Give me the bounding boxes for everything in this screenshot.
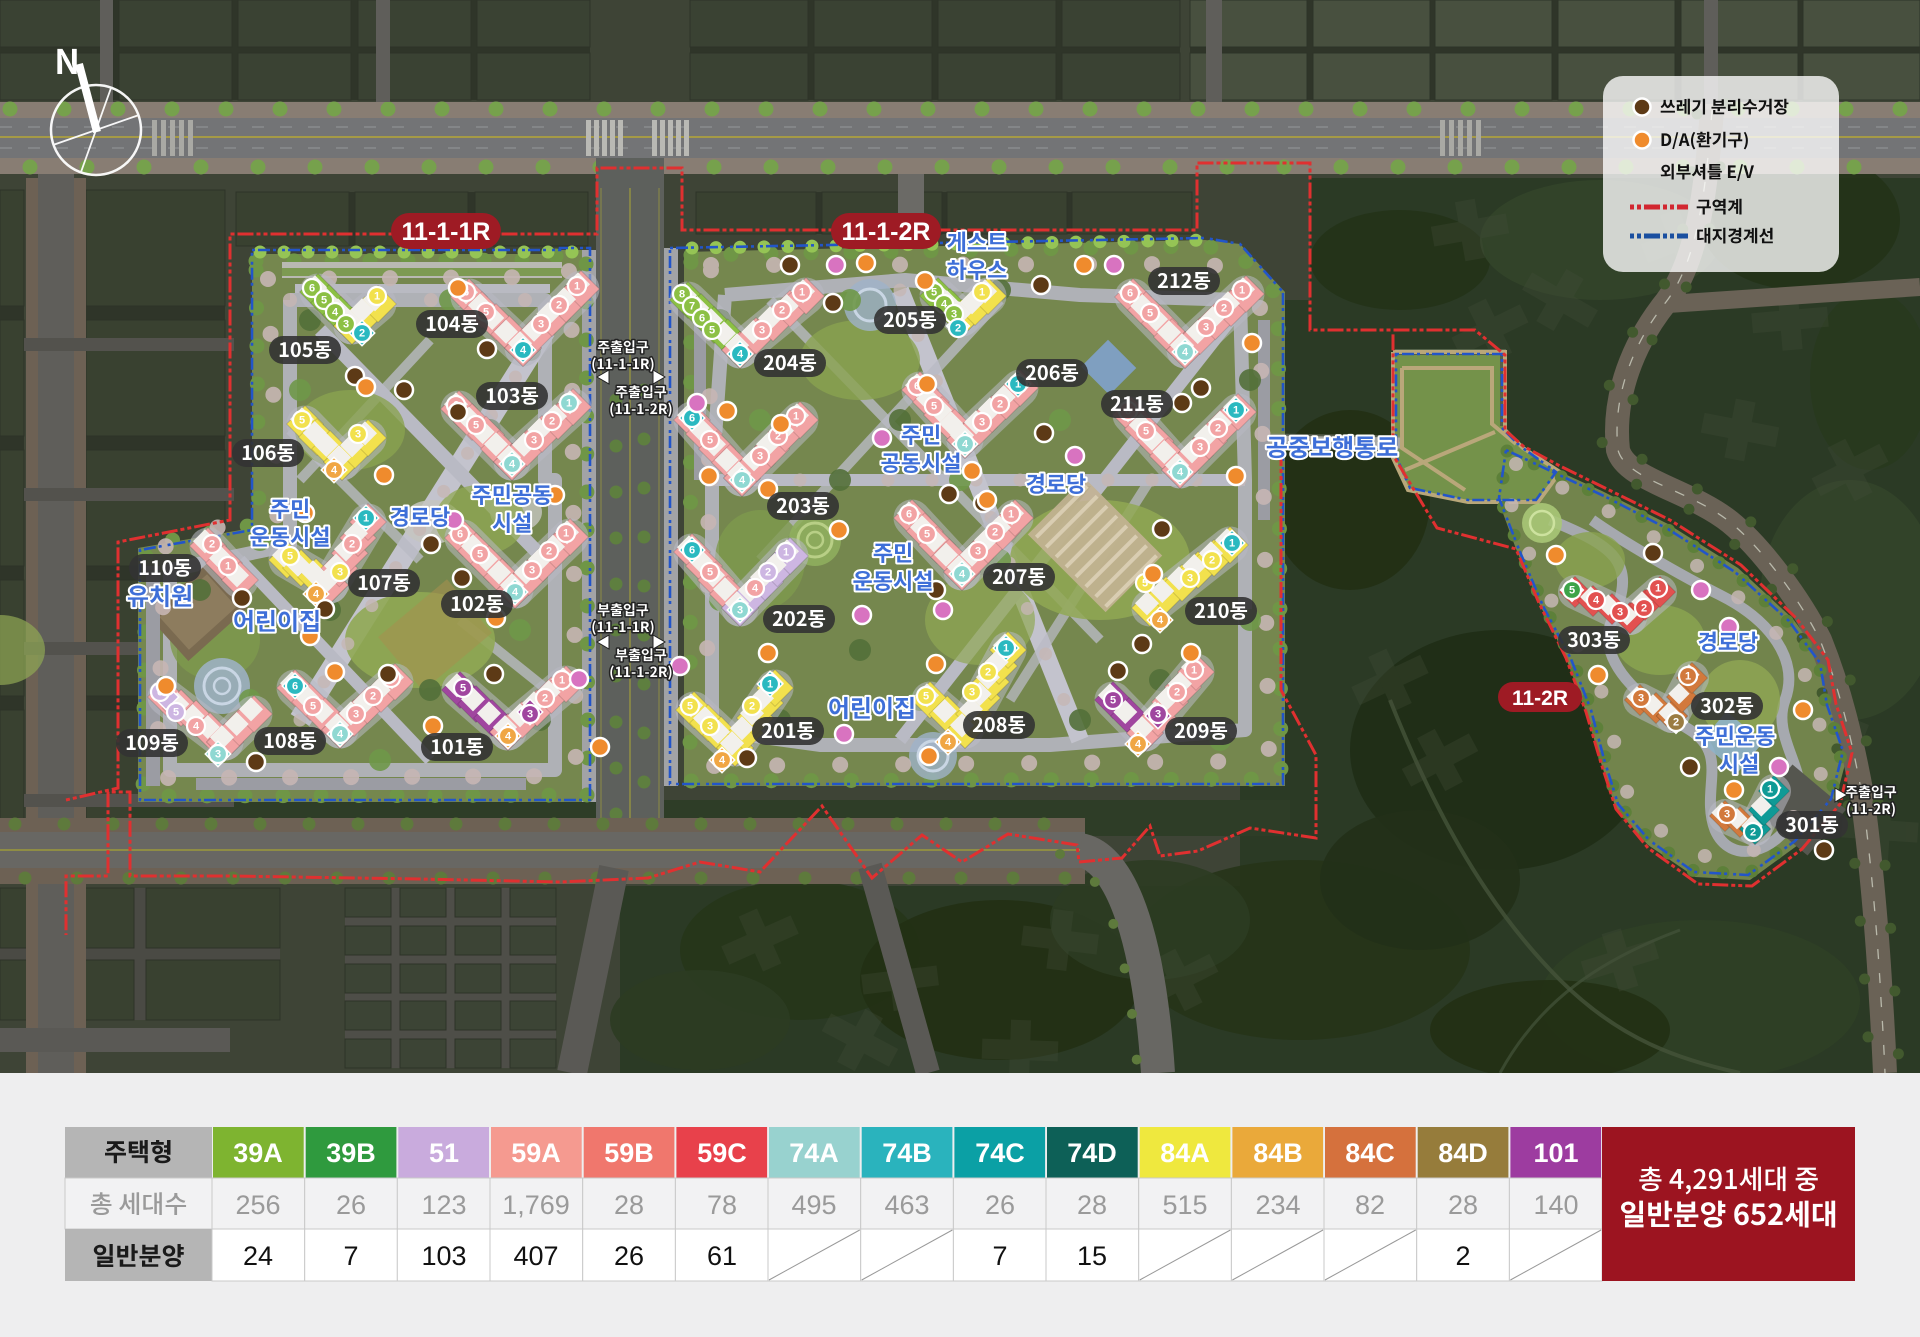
svg-text:5: 5	[687, 701, 693, 713]
svg-text:6: 6	[1127, 288, 1133, 300]
svg-text:5: 5	[173, 707, 179, 719]
svg-text:140: 140	[1533, 1190, 1578, 1220]
svg-text:1: 1	[1233, 405, 1239, 417]
svg-text:6: 6	[309, 283, 315, 295]
svg-text:4: 4	[962, 439, 969, 451]
svg-text:6: 6	[457, 529, 463, 541]
svg-text:6: 6	[906, 509, 912, 521]
svg-text:2: 2	[542, 693, 548, 705]
svg-text:1: 1	[783, 547, 789, 559]
svg-text:84A: 84A	[1160, 1138, 1210, 1168]
svg-text:4: 4	[313, 589, 320, 601]
svg-text:7: 7	[689, 301, 695, 313]
svg-text:5: 5	[924, 529, 930, 541]
svg-text:3: 3	[353, 709, 359, 721]
svg-text:1: 1	[363, 513, 369, 525]
svg-text:1: 1	[767, 679, 773, 691]
svg-text:2: 2	[556, 300, 562, 312]
svg-text:6: 6	[689, 413, 695, 425]
svg-text:2: 2	[985, 667, 991, 679]
svg-text:4: 4	[739, 475, 746, 487]
svg-text:407: 407	[513, 1241, 558, 1271]
svg-text:1: 1	[1003, 643, 1009, 655]
svg-text:2: 2	[997, 399, 1003, 411]
svg-text:61: 61	[707, 1241, 737, 1271]
svg-text:5: 5	[460, 683, 466, 695]
svg-text:26: 26	[985, 1190, 1015, 1220]
svg-text:3: 3	[215, 749, 221, 761]
svg-text:84D: 84D	[1438, 1138, 1488, 1168]
svg-text:463: 463	[884, 1190, 929, 1220]
svg-text:2: 2	[955, 323, 961, 335]
svg-text:74D: 74D	[1067, 1138, 1117, 1168]
svg-text:3: 3	[337, 567, 343, 579]
svg-text:5: 5	[477, 549, 483, 561]
svg-text:1: 1	[1239, 285, 1245, 297]
svg-text:1: 1	[979, 287, 985, 299]
svg-text:7: 7	[343, 1241, 358, 1271]
svg-text:1: 1	[799, 287, 805, 299]
svg-text:4: 4	[520, 345, 527, 357]
svg-text:4: 4	[505, 731, 512, 743]
svg-text:3: 3	[979, 417, 985, 429]
svg-text:3: 3	[1197, 442, 1203, 454]
svg-text:2: 2	[1209, 555, 1215, 567]
svg-text:101: 101	[1533, 1138, 1578, 1168]
svg-text:3: 3	[969, 687, 975, 699]
svg-text:78: 78	[707, 1190, 737, 1220]
svg-text:39A: 39A	[233, 1138, 283, 1168]
svg-text:3: 3	[707, 721, 713, 733]
svg-text:5: 5	[923, 691, 929, 703]
svg-text:2: 2	[1221, 303, 1227, 315]
svg-text:234: 234	[1255, 1190, 1300, 1220]
svg-text:2: 2	[1673, 717, 1679, 729]
svg-text:5: 5	[299, 415, 305, 427]
svg-text:5: 5	[473, 420, 479, 432]
svg-text:15: 15	[1077, 1241, 1107, 1271]
svg-text:74C: 74C	[975, 1138, 1025, 1168]
svg-text:1: 1	[563, 528, 569, 540]
svg-text:4: 4	[1157, 615, 1164, 627]
svg-text:1: 1	[1229, 538, 1235, 550]
svg-text:26: 26	[336, 1190, 366, 1220]
svg-text:3: 3	[538, 319, 544, 331]
svg-text:2: 2	[779, 305, 785, 317]
svg-text:5: 5	[321, 295, 327, 307]
svg-text:515: 515	[1162, 1190, 1207, 1220]
svg-text:4: 4	[945, 737, 952, 749]
svg-text:1: 1	[559, 675, 565, 687]
svg-text:4: 4	[1177, 467, 1184, 479]
svg-text:256: 256	[235, 1190, 280, 1220]
svg-text:4: 4	[752, 583, 759, 595]
svg-text:4: 4	[512, 587, 519, 599]
svg-text:4: 4	[193, 721, 200, 733]
svg-text:3: 3	[737, 605, 743, 617]
svg-text:8: 8	[679, 289, 685, 301]
svg-text:2: 2	[1641, 603, 1647, 615]
svg-text:4: 4	[959, 569, 966, 581]
svg-text:82: 82	[1355, 1190, 1385, 1220]
svg-text:74A: 74A	[789, 1138, 839, 1168]
svg-text:5: 5	[310, 701, 316, 713]
svg-text:1: 1	[1655, 583, 1661, 595]
svg-text:2: 2	[1455, 1241, 1470, 1271]
svg-text:4: 4	[1135, 739, 1142, 751]
svg-text:3: 3	[1724, 809, 1730, 821]
svg-text:2: 2	[1750, 827, 1756, 839]
svg-text:2: 2	[1174, 687, 1180, 699]
svg-text:4: 4	[719, 755, 726, 767]
svg-text:2: 2	[749, 701, 755, 713]
svg-text:59A: 59A	[511, 1138, 561, 1168]
svg-text:2: 2	[209, 539, 215, 551]
svg-text:2: 2	[546, 546, 552, 558]
svg-text:3: 3	[531, 435, 537, 447]
svg-text:3: 3	[355, 429, 361, 441]
svg-text:1: 1	[1685, 671, 1691, 683]
svg-text:1: 1	[566, 398, 572, 410]
svg-text:28: 28	[1448, 1190, 1478, 1220]
svg-text:5: 5	[707, 435, 713, 447]
svg-text:3: 3	[1155, 709, 1161, 721]
svg-text:6: 6	[699, 313, 705, 325]
svg-text:7: 7	[992, 1241, 1007, 1271]
svg-text:28: 28	[1077, 1190, 1107, 1220]
svg-text:2: 2	[1215, 423, 1221, 435]
svg-text:1: 1	[1008, 509, 1014, 521]
svg-text:39B: 39B	[326, 1138, 376, 1168]
svg-text:11-2R: 11-2R	[1512, 687, 1568, 710]
svg-text:24: 24	[243, 1241, 273, 1271]
svg-text:4: 4	[331, 465, 338, 477]
svg-text:5: 5	[931, 401, 937, 413]
svg-text:3: 3	[1187, 573, 1193, 585]
svg-text:123: 123	[421, 1190, 466, 1220]
svg-text:4: 4	[737, 349, 744, 361]
svg-text:2: 2	[359, 328, 365, 340]
svg-text:26: 26	[614, 1241, 644, 1271]
svg-text:103: 103	[421, 1241, 466, 1271]
svg-text:84B: 84B	[1253, 1138, 1303, 1168]
svg-text:3: 3	[757, 451, 763, 463]
svg-text:11-1-1R: 11-1-1R	[402, 218, 491, 246]
svg-text:1: 1	[793, 411, 799, 423]
svg-text:2: 2	[370, 691, 376, 703]
svg-text:4: 4	[337, 729, 344, 741]
svg-text:28: 28	[614, 1190, 644, 1220]
svg-text:3: 3	[975, 546, 981, 558]
svg-text:3: 3	[527, 709, 533, 721]
svg-text:3: 3	[529, 565, 535, 577]
svg-text:5: 5	[287, 551, 293, 563]
svg-text:5: 5	[1143, 426, 1149, 438]
svg-text:4: 4	[509, 459, 516, 471]
svg-text:59B: 59B	[604, 1138, 654, 1168]
svg-text:6: 6	[292, 681, 298, 693]
svg-text:3: 3	[759, 325, 765, 337]
svg-text:59C: 59C	[697, 1138, 747, 1168]
svg-text:6: 6	[689, 545, 695, 557]
svg-text:3: 3	[343, 319, 349, 331]
svg-text:5: 5	[709, 325, 715, 337]
svg-text:5: 5	[1569, 585, 1575, 597]
svg-text:4: 4	[1593, 595, 1600, 607]
svg-text:1: 1	[1767, 784, 1773, 796]
svg-text:2: 2	[765, 567, 771, 579]
svg-text:11-1-2R: 11-1-2R	[842, 218, 931, 246]
svg-text:2: 2	[549, 416, 555, 428]
svg-text:5: 5	[1147, 308, 1153, 320]
svg-text:2: 2	[992, 527, 998, 539]
svg-text:3: 3	[1617, 607, 1623, 619]
svg-text:1: 1	[574, 281, 580, 293]
svg-text:3: 3	[1638, 693, 1644, 705]
svg-text:74B: 74B	[882, 1138, 932, 1168]
svg-text:5: 5	[1110, 695, 1116, 707]
svg-text:2: 2	[349, 539, 355, 551]
svg-text:4: 4	[332, 307, 339, 319]
svg-text:84C: 84C	[1345, 1138, 1395, 1168]
svg-text:1,769: 1,769	[502, 1190, 570, 1220]
svg-text:3: 3	[1203, 322, 1209, 334]
svg-text:4: 4	[1182, 347, 1189, 359]
svg-text:5: 5	[707, 567, 713, 579]
svg-text:1: 1	[1191, 665, 1197, 677]
svg-text:51: 51	[429, 1138, 459, 1168]
svg-text:1: 1	[225, 561, 231, 573]
svg-text:1: 1	[374, 291, 380, 303]
svg-text:495: 495	[791, 1190, 836, 1220]
